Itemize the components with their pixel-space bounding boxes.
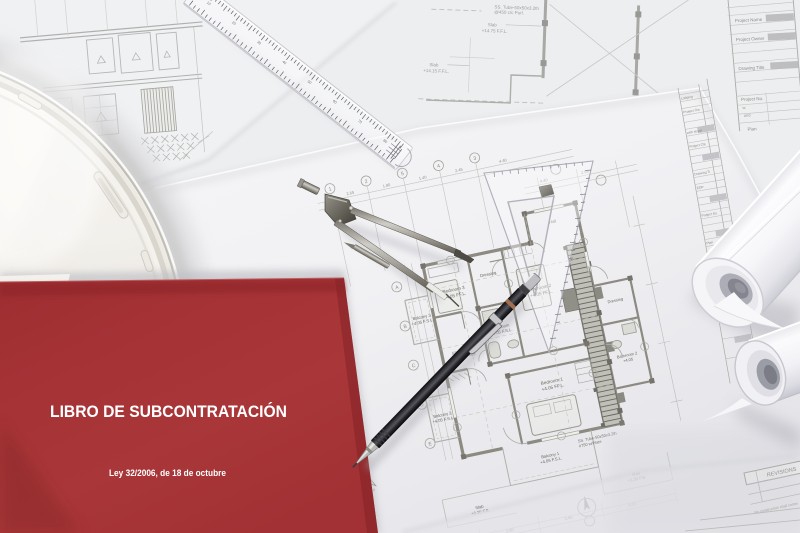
svg-text:and: and <box>744 113 751 118</box>
svg-text:Ley 32/2006, de 18 de octubre: Ley 32/2006, de 18 de octubre <box>109 468 226 478</box>
svg-text:@450 c/c Purl.: @450 c/c Purl. <box>494 9 524 15</box>
svg-text:Slab: Slab <box>429 62 439 67</box>
svg-text:w.: w. <box>742 105 746 110</box>
svg-text:Slab: Slab <box>488 22 498 27</box>
svg-text:+14.75 F.F.L.: +14.75 F.F.L. <box>482 28 508 34</box>
svg-text:Plan: Plan <box>747 126 757 131</box>
svg-text:LIBRO DE SUBCONTRATACIÓN: LIBRO DE SUBCONTRATACIÓN <box>50 402 287 421</box>
svg-text:+14.15 F.F.L.: +14.15 F.F.L. <box>423 68 449 74</box>
